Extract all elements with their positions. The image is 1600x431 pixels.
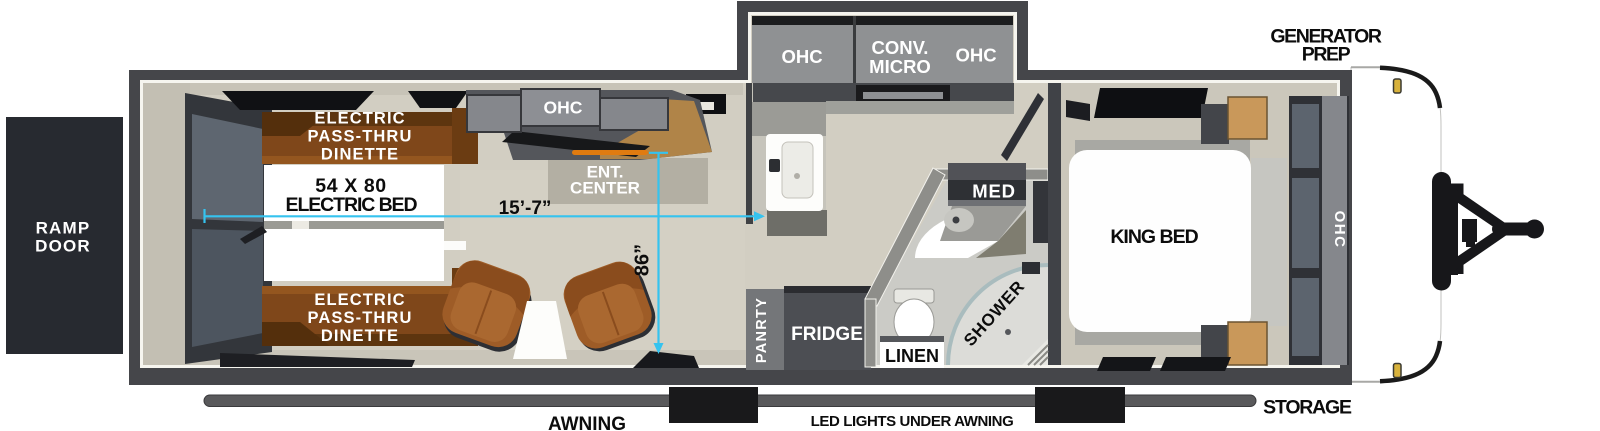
svg-text:PANRTY: PANRTY <box>754 297 770 363</box>
svg-text:PREP: PREP <box>1302 44 1351 66</box>
svg-text:DINETTE: DINETTE <box>321 327 399 345</box>
svg-text:ELECTRIC: ELECTRIC <box>314 110 405 128</box>
svg-text:CENTER: CENTER <box>570 179 640 198</box>
svg-text:MED: MED <box>972 181 1016 202</box>
svg-text:MICRO: MICRO <box>869 56 931 77</box>
svg-text:ELECTRIC BED: ELECTRIC BED <box>286 194 418 216</box>
svg-text:OHC: OHC <box>955 45 996 66</box>
svg-text:KING BED: KING BED <box>1110 226 1198 248</box>
svg-text:PASS-THRU: PASS-THRU <box>308 309 413 327</box>
svg-text:OHC: OHC <box>1331 211 1348 249</box>
svg-text:15’-7”: 15’-7” <box>499 198 552 219</box>
svg-text:RAMP: RAMP <box>36 219 91 238</box>
svg-text:OHC: OHC <box>781 46 822 67</box>
svg-text:LINEN: LINEN <box>885 346 939 366</box>
svg-text:STORAGE: STORAGE <box>1263 397 1352 419</box>
svg-text:PASS-THRU: PASS-THRU <box>308 128 413 146</box>
svg-text:ELECTRIC: ELECTRIC <box>314 291 405 309</box>
svg-text:86”: 86” <box>632 244 654 276</box>
svg-text:DINETTE: DINETTE <box>321 146 399 164</box>
svg-text:DOOR: DOOR <box>35 237 91 256</box>
svg-text:OHC: OHC <box>544 98 583 118</box>
svg-text:FRIDGE: FRIDGE <box>791 324 863 345</box>
svg-text:AWNING: AWNING <box>548 414 626 431</box>
svg-text:CONV.: CONV. <box>872 37 929 58</box>
